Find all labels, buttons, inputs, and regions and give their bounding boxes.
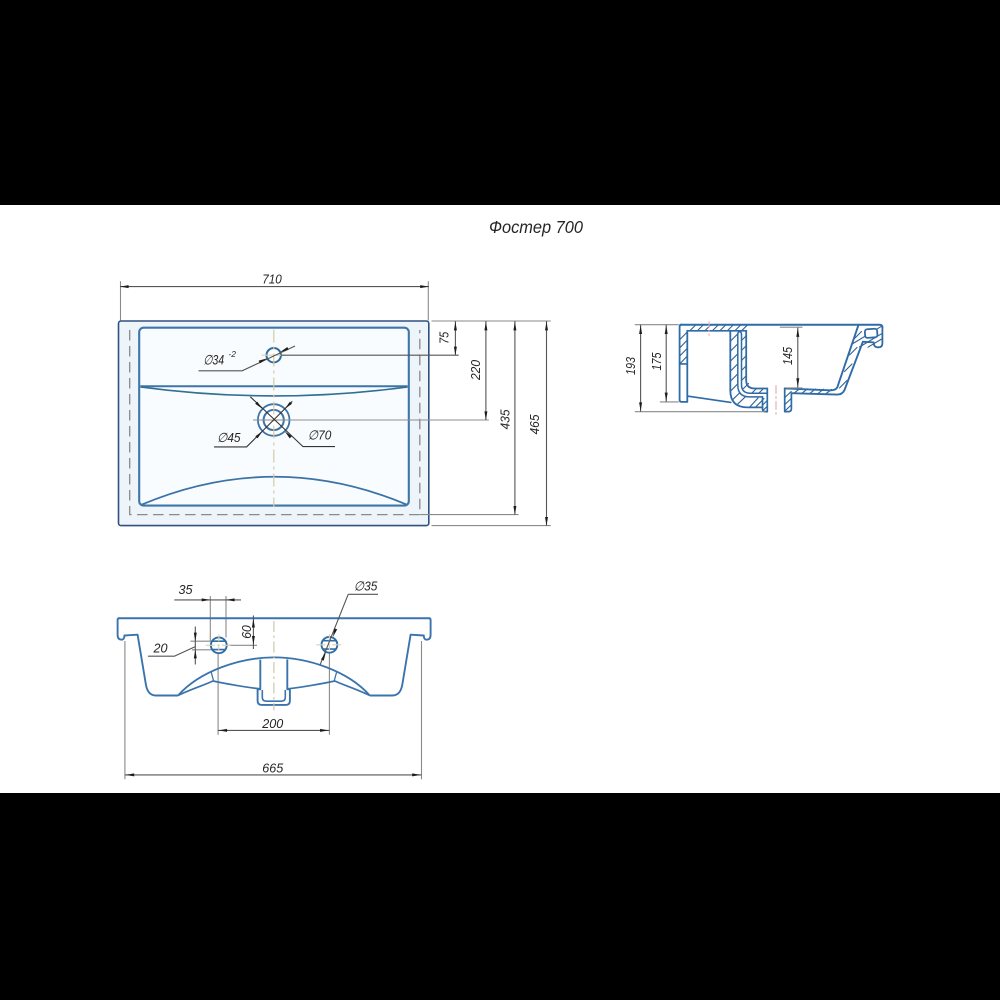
svg-text:20: 20 — [152, 641, 167, 655]
svg-text:710: 710 — [262, 273, 282, 287]
svg-text:Фостер 700: Фостер 700 — [489, 217, 583, 237]
svg-text:200: 200 — [261, 717, 283, 731]
svg-text:-2: -2 — [228, 349, 236, 359]
svg-text:35: 35 — [179, 583, 193, 597]
svg-text:∅45: ∅45 — [217, 430, 241, 445]
svg-text:∅70: ∅70 — [308, 428, 332, 443]
svg-text:465: 465 — [528, 414, 542, 434]
svg-text:60: 60 — [240, 625, 254, 639]
svg-text:665: 665 — [262, 762, 283, 776]
svg-text:220: 220 — [469, 360, 483, 381]
svg-text:∅35: ∅35 — [354, 579, 378, 594]
svg-text:145: 145 — [781, 347, 795, 365]
svg-text:75: 75 — [438, 332, 452, 344]
svg-text:193: 193 — [624, 357, 638, 375]
svg-text:175: 175 — [650, 352, 664, 370]
svg-text:∅34: ∅34 — [203, 353, 224, 368]
svg-text:435: 435 — [498, 409, 512, 429]
